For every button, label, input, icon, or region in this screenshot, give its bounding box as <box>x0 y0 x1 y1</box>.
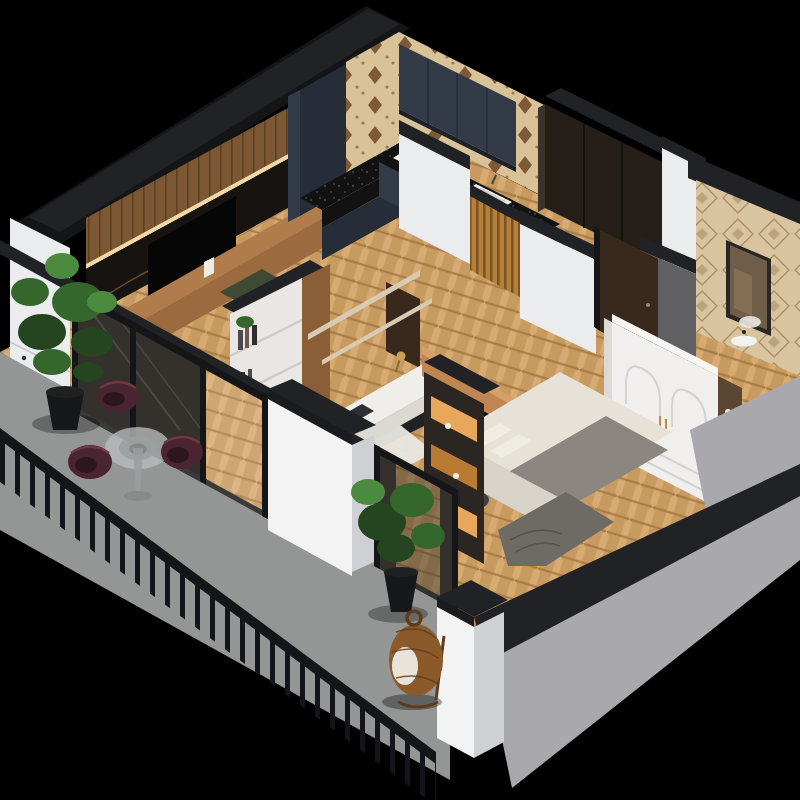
book <box>238 330 243 350</box>
door-frame <box>200 358 206 484</box>
plant-foliage <box>18 314 66 350</box>
wardrobe-edge <box>538 104 545 212</box>
door-frame <box>262 392 268 519</box>
plant-foliage <box>45 253 79 279</box>
pot-rim <box>384 567 418 577</box>
plant-foliage <box>71 327 113 357</box>
cabinet-handle <box>22 356 26 360</box>
armchair-seat <box>75 457 97 473</box>
shelf-plant <box>236 316 254 328</box>
door-handle <box>646 303 650 307</box>
mirror-reflection <box>734 268 752 316</box>
armchair-seat <box>167 447 189 463</box>
pot-rim <box>46 386 84 398</box>
basin-faucet <box>742 330 746 334</box>
floorplan-3d-scene <box>0 0 800 800</box>
armchair-seat <box>103 392 125 406</box>
plant-foliage <box>377 534 415 562</box>
apartment-render <box>0 0 800 800</box>
plant-foliage <box>11 278 49 306</box>
door-jamb <box>594 226 600 331</box>
plant-foliage <box>33 349 71 375</box>
plant-foliage <box>73 362 103 382</box>
plant-foliage <box>411 523 445 549</box>
book <box>245 327 249 348</box>
shelf-item <box>445 423 451 429</box>
plant-foliage <box>390 483 434 517</box>
basin <box>731 336 757 347</box>
wicker-cushion <box>392 647 418 685</box>
shelf-item <box>453 473 459 479</box>
book <box>252 325 257 345</box>
plant-foliage <box>87 291 117 313</box>
plant-foliage <box>351 479 385 505</box>
table-base <box>124 491 152 501</box>
mirror-basin-reflection <box>739 316 761 328</box>
corner-pillar-side <box>474 612 504 758</box>
corner-pillar-front <box>437 607 474 758</box>
tall-cabinet-side <box>288 90 300 222</box>
desk-lamp <box>397 352 406 361</box>
